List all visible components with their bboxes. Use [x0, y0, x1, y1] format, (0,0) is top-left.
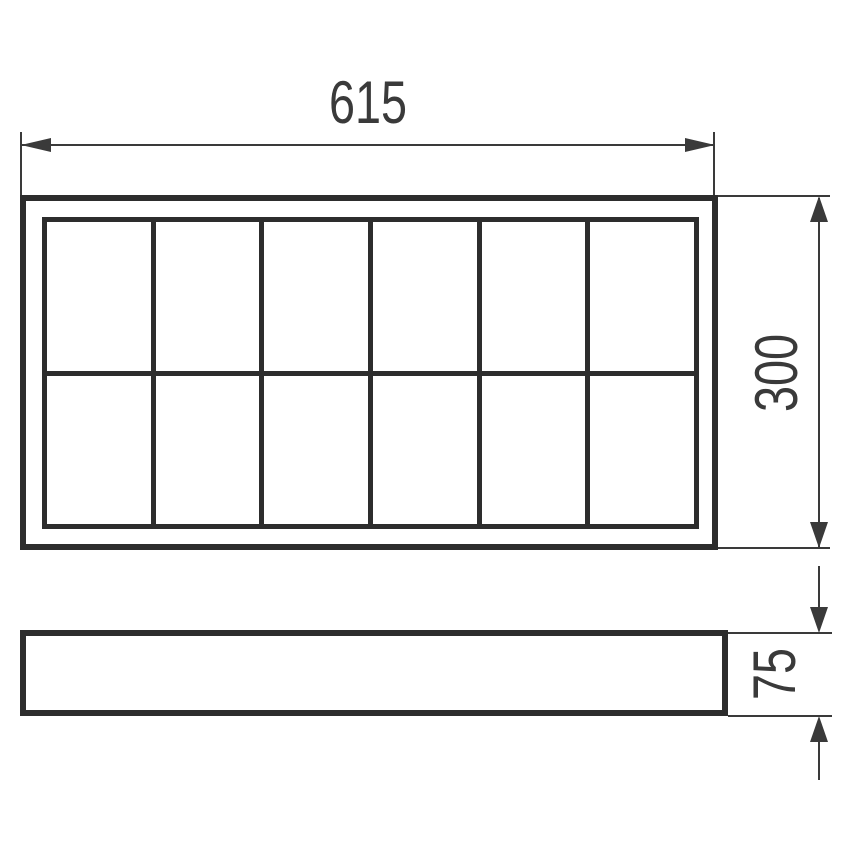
arrowhead-down-icon: [810, 607, 828, 633]
louvre-cell: [482, 376, 586, 525]
louvre-grid: [42, 217, 699, 529]
arrowhead-left-icon: [21, 138, 51, 152]
arrowhead-right-icon: [685, 138, 715, 152]
depth-witness-line-bottom: [818, 740, 820, 780]
louvre-cell: [590, 376, 694, 525]
arrowhead-up-icon: [810, 716, 828, 742]
width-dimension-line: [21, 144, 715, 146]
width-dimension-label: 615: [290, 73, 446, 133]
luminaire-side-view-frame: [20, 630, 728, 716]
louvre-cell: [373, 376, 477, 525]
louvre-cell: [156, 376, 260, 525]
depth-witness-line-top: [818, 566, 820, 610]
louvre-cell: [156, 222, 260, 371]
louvre-cell: [373, 222, 477, 371]
louvre-cell: [482, 222, 586, 371]
arrowhead-down-icon: [810, 522, 828, 548]
height-dimension-label: 300: [747, 295, 807, 451]
louvre-cell: [264, 376, 368, 525]
depth-dimension-label: 75: [745, 596, 805, 752]
drawing-canvas: 615 300 75: [0, 0, 850, 850]
louvre-cell: [47, 222, 151, 371]
louvre-cell: [264, 222, 368, 371]
arrowhead-up-icon: [810, 196, 828, 222]
louvre-cell: [47, 376, 151, 525]
height-dimension-line: [818, 198, 820, 548]
louvre-cell: [590, 222, 694, 371]
